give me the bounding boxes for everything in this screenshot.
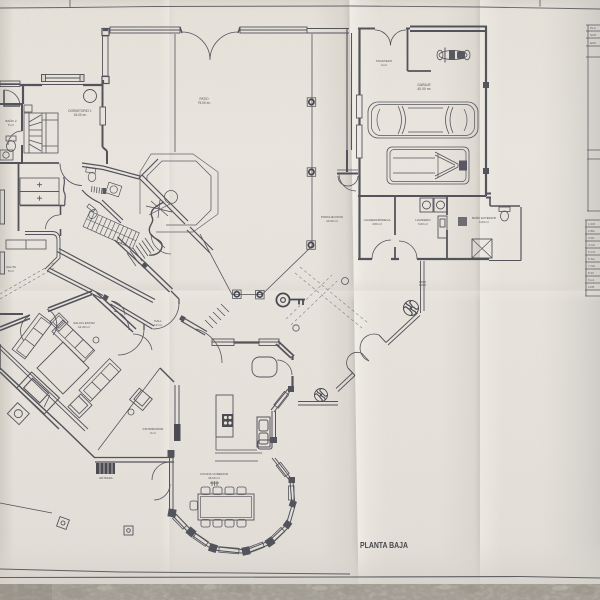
svg-text:1.DO: 1.DO (588, 222, 596, 226)
svg-text:2.BA: 2.BA (588, 229, 596, 233)
svg-text:75.00 m²: 75.00 m² (198, 101, 211, 105)
svg-text:16.00 m²: 16.00 m² (74, 113, 87, 117)
svg-text:SUP: SUP (590, 33, 596, 37)
svg-text:3.PA: 3.PA (588, 236, 595, 240)
svg-text:PLA: PLA (590, 26, 597, 30)
svg-text:5 m²: 5 m² (8, 123, 14, 127)
svg-text:10.00 m²: 10.00 m² (326, 219, 338, 223)
svg-text:5.CO: 5.CO (588, 250, 596, 254)
svg-text:6.SA: 6.SA (588, 257, 596, 261)
svg-text:41.00 m²: 41.00 m² (78, 325, 90, 329)
svg-text:ESC: ESC (590, 41, 597, 45)
svg-text:10 m²: 10 m² (154, 323, 162, 327)
svg-text:4.50 m²: 4.50 m² (372, 222, 382, 226)
svg-text:10.B: 10.B (588, 285, 594, 289)
svg-text:40.00 m²: 40.00 m² (417, 87, 431, 91)
svg-text:PLANTA BAJA: PLANTA BAJA (360, 540, 408, 550)
svg-text:4 m²: 4 m² (381, 63, 387, 67)
svg-text:8 m²: 8 m² (8, 269, 14, 273)
svg-text:46.00 m²: 46.00 m² (208, 476, 220, 480)
svg-text:7.HA: 7.HA (588, 264, 596, 268)
svg-text:6.00 m²: 6.00 m² (479, 220, 489, 224)
svg-text:4.GA: 4.GA (588, 243, 596, 247)
svg-text:6.00 m²: 6.00 m² (418, 222, 428, 226)
svg-text:ENTRADA: ENTRADA (99, 476, 112, 480)
svg-text:8.DI: 8.DI (588, 271, 594, 275)
svg-text:9 m²: 9 m² (150, 431, 156, 435)
svg-text:9.LA: 9.LA (588, 278, 595, 282)
